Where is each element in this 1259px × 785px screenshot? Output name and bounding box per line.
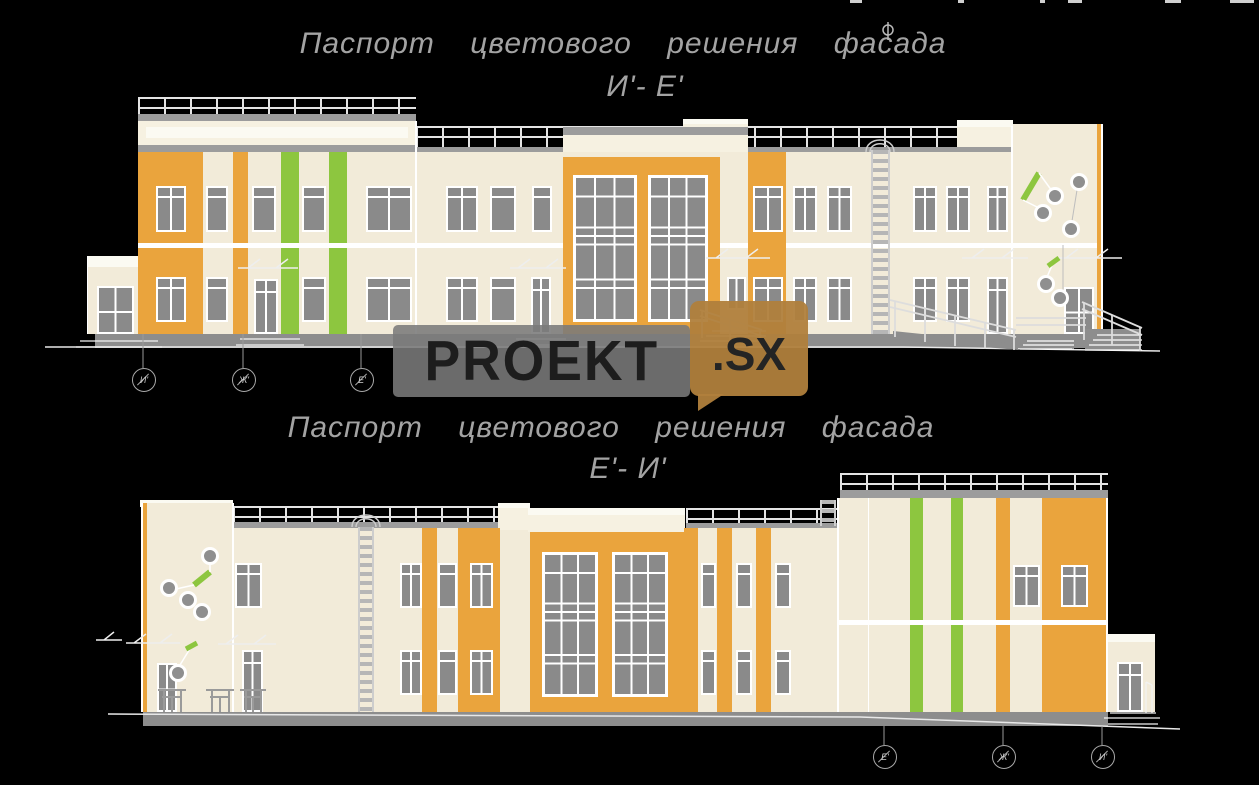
window bbox=[736, 650, 752, 695]
axis-marker: И' bbox=[132, 368, 156, 392]
window bbox=[793, 186, 817, 232]
parapet-wall bbox=[957, 127, 1013, 147]
window bbox=[532, 186, 552, 232]
window bbox=[490, 186, 516, 232]
accent-stripe-green bbox=[951, 498, 963, 712]
wall-edge-line bbox=[87, 256, 88, 334]
window bbox=[366, 277, 412, 322]
window bbox=[400, 563, 422, 608]
axis-marker: Ж' bbox=[232, 368, 256, 392]
fire-ladder bbox=[820, 500, 836, 526]
axis-marker-label: Е' bbox=[881, 752, 889, 762]
cornice-band bbox=[138, 114, 416, 121]
watermark-bubble: .SX bbox=[690, 301, 808, 396]
window bbox=[206, 186, 228, 232]
window bbox=[302, 277, 326, 322]
accent-panel-orange bbox=[143, 503, 147, 712]
window bbox=[156, 186, 186, 232]
window bbox=[701, 650, 716, 695]
wall-edge-line bbox=[837, 498, 839, 712]
axis-marker: Ж' bbox=[992, 745, 1016, 769]
double-door bbox=[97, 286, 134, 334]
window bbox=[438, 650, 457, 695]
axis-marker-label: И' bbox=[1099, 752, 1107, 762]
door bbox=[242, 650, 263, 712]
wall-edge-line bbox=[232, 503, 234, 712]
window bbox=[366, 186, 412, 232]
window bbox=[446, 277, 478, 322]
accent-panel-orange bbox=[684, 528, 698, 712]
accent-panel-orange bbox=[996, 498, 1010, 712]
window bbox=[913, 277, 937, 322]
window bbox=[987, 186, 1008, 232]
window bbox=[775, 650, 791, 695]
axis-marker: Е' bbox=[873, 745, 897, 769]
wall-edge-line bbox=[1011, 126, 1013, 334]
window bbox=[400, 650, 422, 695]
window bbox=[736, 563, 752, 608]
wall-edge-line bbox=[415, 121, 417, 334]
door bbox=[254, 279, 278, 334]
window bbox=[438, 563, 457, 608]
parapet-wall bbox=[528, 515, 685, 532]
door bbox=[1117, 662, 1143, 712]
window bbox=[156, 277, 186, 322]
axis-marker-label: Ж' bbox=[239, 375, 249, 385]
window bbox=[827, 186, 852, 232]
facade-wall bbox=[1013, 124, 1103, 154]
accent-panel-orange bbox=[717, 528, 732, 712]
window bbox=[1013, 565, 1040, 607]
watermark: PROEKT bbox=[393, 325, 690, 397]
window bbox=[775, 563, 791, 608]
entrance-window bbox=[542, 552, 598, 697]
roof-cap bbox=[88, 256, 140, 267]
floor-divider bbox=[838, 620, 1108, 625]
fire-ladder bbox=[358, 527, 374, 712]
entrance-window bbox=[573, 175, 637, 322]
window bbox=[235, 563, 262, 608]
wall-edge-line bbox=[1101, 124, 1103, 334]
window bbox=[701, 563, 716, 608]
fire-ladder bbox=[871, 150, 890, 334]
entrance-window bbox=[612, 552, 668, 697]
window bbox=[206, 277, 228, 322]
door bbox=[987, 277, 1008, 334]
axis-marker-label: Е' bbox=[358, 375, 366, 385]
window bbox=[1061, 565, 1088, 607]
window bbox=[753, 186, 783, 232]
window bbox=[913, 186, 937, 232]
double-door bbox=[1064, 287, 1094, 334]
window bbox=[946, 277, 970, 322]
watermark-domain: .SX bbox=[712, 327, 786, 381]
plinth bbox=[143, 712, 1108, 726]
axis-marker-label: И' bbox=[140, 375, 148, 385]
roof-cap bbox=[528, 508, 685, 515]
roof-cap bbox=[1108, 634, 1155, 642]
axis-marker-label: Ж' bbox=[999, 752, 1009, 762]
accent-panel-orange bbox=[756, 528, 771, 712]
window bbox=[446, 186, 478, 232]
window bbox=[470, 563, 493, 608]
drawing-canvas: Паспорт цветового решения фасада И'- Е' … bbox=[0, 0, 1259, 785]
window bbox=[827, 277, 852, 322]
wall-edge-line bbox=[868, 498, 869, 712]
entrance-window bbox=[648, 175, 708, 322]
window bbox=[490, 277, 516, 322]
axis-marker: Е' bbox=[350, 368, 374, 392]
window bbox=[946, 186, 970, 232]
window bbox=[302, 186, 326, 232]
axis-marker: И' bbox=[1091, 745, 1115, 769]
window bbox=[252, 186, 276, 232]
accent-stripe-green bbox=[910, 498, 923, 712]
roof-cap bbox=[146, 127, 408, 138]
window bbox=[470, 650, 493, 695]
roof-cap bbox=[957, 120, 1013, 127]
accent-panel-orange bbox=[422, 528, 437, 712]
watermark-brand: PROEKT bbox=[424, 328, 659, 394]
cornice-band bbox=[563, 127, 748, 135]
parapet-wall bbox=[498, 508, 530, 530]
double-door bbox=[157, 663, 177, 712]
